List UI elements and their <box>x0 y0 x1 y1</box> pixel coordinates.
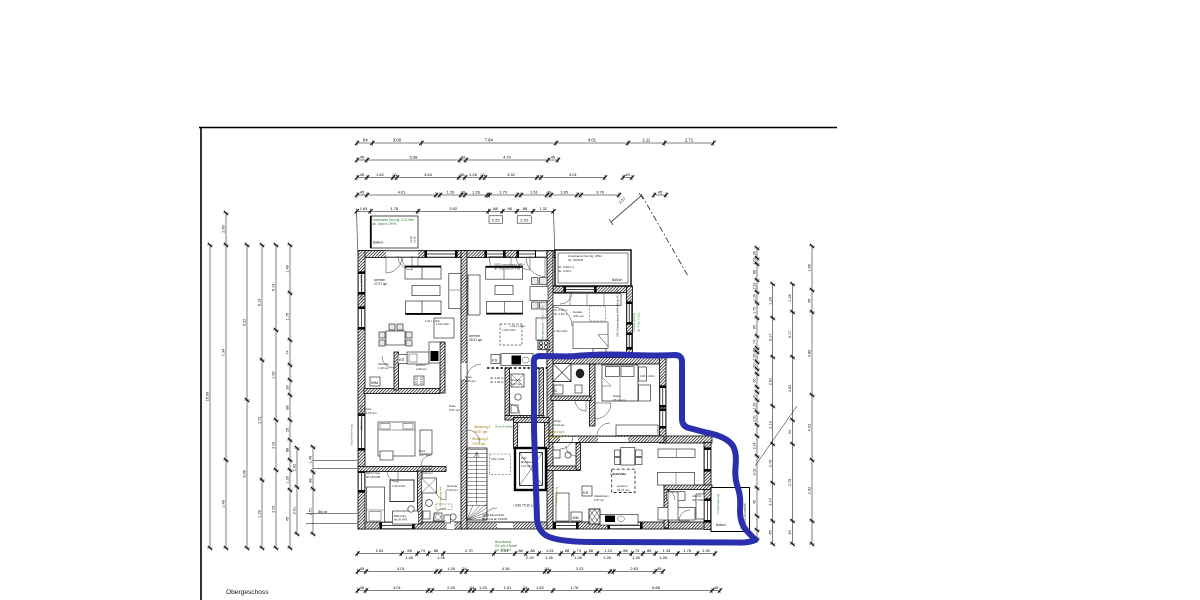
svg-text:30: 30 <box>547 190 552 195</box>
svg-text:88: 88 <box>753 348 757 352</box>
svg-text:1.98: 1.98 <box>808 264 812 271</box>
svg-text:2.51: 2.51 <box>258 416 262 423</box>
svg-text:Balkon: Balkon <box>716 523 726 527</box>
svg-text:5.38: 5.38 <box>410 155 419 160</box>
svg-text:45: 45 <box>658 190 663 195</box>
svg-text:Balkon: Balkon <box>373 241 383 245</box>
svg-text:1.20x1.20m: 1.20x1.20m <box>392 484 406 488</box>
svg-text:1.24: 1.24 <box>604 548 612 553</box>
svg-text:2.22: 2.22 <box>526 555 534 560</box>
svg-text:WM: WM <box>371 380 378 385</box>
svg-text:88: 88 <box>518 548 522 553</box>
svg-text:2-Rettungsweg: 2-Rettungsweg <box>716 493 720 514</box>
svg-text:üb. 2.20 t.L.: üb. 2.20 t.L. <box>554 312 568 316</box>
svg-text:KS: KS <box>583 490 589 495</box>
svg-text:3.14: 3.14 <box>753 443 757 450</box>
svg-text:2.91: 2.91 <box>753 415 757 422</box>
svg-text:1.01: 1.01 <box>753 258 757 265</box>
svg-text:2.70: 2.70 <box>465 548 473 553</box>
svg-text:7.34: 7.34 <box>222 349 226 356</box>
svg-text:üb. 0.90 t.L.: üb. 0.90 t.L. <box>554 308 568 312</box>
svg-text:4.01: 4.01 <box>398 190 407 195</box>
svg-text:5.03 qm: 5.03 qm <box>447 488 458 492</box>
svg-text:88: 88 <box>753 270 757 274</box>
svg-text:0.97 qm: 0.97 qm <box>594 498 605 502</box>
svg-text:28.51 qm: 28.51 qm <box>469 338 483 342</box>
svg-text:6.88: 6.88 <box>652 585 661 590</box>
svg-text:1.28: 1.28 <box>659 555 667 560</box>
svg-text:26: 26 <box>753 251 757 255</box>
svg-text:üb. 2.20 t.L.: üb. 2.20 t.L. <box>490 380 505 384</box>
svg-text:1.26 x 1.26m: 1.26 x 1.26m <box>425 319 440 323</box>
svg-text:BRK4.Nos ab OKFFB: BRK4.Nos ab OKFFB <box>360 275 364 300</box>
svg-text:4.01: 4.01 <box>588 138 597 143</box>
svg-text:BRK4.Nos ab OKFFB: BRK4.Nos ab OKFFB <box>360 405 364 430</box>
svg-text:2.22: 2.22 <box>520 218 529 223</box>
svg-text:88: 88 <box>309 478 313 482</box>
svg-text:üb. 4 töx 1.23m: üb. 4 töx 1.23m <box>637 312 641 332</box>
svg-text:2.11: 2.11 <box>642 138 651 143</box>
svg-text:D: D <box>555 389 558 393</box>
svg-text:Gesz.Proffäche 42: Gesz.Proffäche 42 <box>495 425 520 429</box>
svg-text:86: 86 <box>508 206 513 211</box>
svg-text:5.03 qm: 5.03 qm <box>422 471 433 475</box>
svg-text:1.26: 1.26 <box>545 555 553 560</box>
svg-text:4.70: 4.70 <box>503 155 512 160</box>
svg-text:1.26: 1.26 <box>574 555 582 560</box>
svg-text:WM: WM <box>573 516 579 520</box>
svg-text:1.29: 1.29 <box>258 510 262 517</box>
svg-text:1.26 x 1.26m: 1.26 x 1.26m <box>610 472 625 476</box>
svg-text:3.32: 3.32 <box>507 172 516 177</box>
svg-text:6.13: 6.13 <box>258 299 262 306</box>
svg-text:74: 74 <box>753 340 757 344</box>
svg-text:1.62: 1.62 <box>536 585 545 590</box>
svg-text:45: 45 <box>551 155 556 160</box>
svg-text:88: 88 <box>407 548 411 553</box>
svg-text:3.17: 3.17 <box>788 331 792 338</box>
svg-text:2.01: 2.01 <box>272 441 276 448</box>
svg-text:2.79: 2.79 <box>768 460 772 467</box>
svg-text:KS: KS <box>492 358 498 363</box>
svg-text:74: 74 <box>286 350 290 354</box>
svg-text:üb. 45cm ab OK FFB: üb. 45cm ab OK FFB <box>494 266 520 270</box>
svg-text:2.13: 2.13 <box>768 421 772 428</box>
svg-text:88: 88 <box>523 206 528 211</box>
svg-text:45: 45 <box>360 155 365 160</box>
svg-text:1.75: 1.75 <box>286 313 290 320</box>
svg-text:45: 45 <box>625 172 630 177</box>
svg-text:OR 765/L: OR 765/L <box>692 498 704 502</box>
svg-text:1.70: 1.70 <box>499 190 508 195</box>
svg-text:91: 91 <box>753 394 757 398</box>
svg-text:4.80: 4.80 <box>808 350 812 357</box>
svg-text:L50x 1.20tx: L50x 1.20tx <box>491 457 505 461</box>
svg-text:1.26: 1.26 <box>753 403 757 410</box>
svg-text:3.06: 3.06 <box>243 470 247 477</box>
svg-text:1.62: 1.62 <box>376 172 385 177</box>
svg-text:1.26: 1.26 <box>768 297 772 304</box>
svg-text:KS: KS <box>399 357 405 362</box>
svg-text:1.32: 1.32 <box>539 206 548 211</box>
svg-text:8.27 qm: 8.27 qm <box>419 453 430 457</box>
svg-text:1.20: 1.20 <box>479 585 488 590</box>
svg-text:4.02: 4.02 <box>808 424 812 431</box>
svg-text:1.62: 1.62 <box>272 371 276 378</box>
svg-text:Wohnung 4: Wohnung 4 <box>474 425 490 429</box>
svg-text:1.76: 1.76 <box>684 548 692 553</box>
svg-text:VSG Fensterelement 2Rf4 Wtk ab: VSG Fensterelement 2Rf4 Wtk ab OK FFB <box>617 289 620 337</box>
svg-text:30: 30 <box>460 172 465 177</box>
svg-text:+2.38: +2.38 <box>409 236 413 243</box>
svg-text:1.48: 1.48 <box>222 500 226 507</box>
svg-text:45: 45 <box>768 530 772 534</box>
svg-text:2.22: 2.22 <box>492 218 501 223</box>
svg-text:1.26: 1.26 <box>753 294 757 301</box>
svg-text:4.02: 4.02 <box>788 385 792 392</box>
svg-text:2.60: 2.60 <box>222 225 226 232</box>
svg-text:2.71: 2.71 <box>685 138 694 143</box>
svg-text:1.26: 1.26 <box>603 555 611 560</box>
svg-text:Wohnung 5: Wohnung 5 <box>548 430 564 434</box>
svg-text:45: 45 <box>360 190 365 195</box>
svg-text:1.75: 1.75 <box>753 307 757 314</box>
svg-text:üb. 2.20 li.: üb. 2.20 li. <box>558 269 572 273</box>
svg-text:2.63: 2.63 <box>630 566 639 571</box>
svg-text:3.64: 3.64 <box>424 172 433 177</box>
svg-text:1.26: 1.26 <box>447 566 456 571</box>
svg-text:üb. OKFFB: üb. OKFFB <box>568 258 583 262</box>
svg-text:1.64: 1.64 <box>360 206 369 211</box>
svg-text:88: 88 <box>493 206 498 211</box>
svg-text:1.49: 1.49 <box>309 456 313 463</box>
svg-text:3.01: 3.01 <box>393 585 402 590</box>
svg-text:1.26: 1.26 <box>788 294 792 301</box>
svg-text:45: 45 <box>657 566 662 571</box>
svg-text:5.13: 5.13 <box>272 284 276 291</box>
svg-text:3.92: 3.92 <box>449 206 458 211</box>
svg-text:24: 24 <box>462 566 467 571</box>
svg-text:.64: .64 <box>362 138 368 143</box>
svg-text:3.06 qm: 3.06 qm <box>465 379 476 383</box>
svg-text:Btk.se: Btk.se <box>318 510 328 514</box>
svg-text:45: 45 <box>360 585 365 590</box>
svg-text:4.36: 4.36 <box>502 566 511 571</box>
svg-text:ab. UNw.b OFF8: ab. UNw.b OFF8 <box>373 222 397 226</box>
svg-text:24: 24 <box>470 585 475 590</box>
svg-text:4.01: 4.01 <box>397 566 406 571</box>
svg-text:1.34: 1.34 <box>663 548 671 553</box>
svg-text:2.79: 2.79 <box>788 479 792 486</box>
svg-text:1.26: 1.26 <box>286 476 290 483</box>
svg-text:2.26: 2.26 <box>447 585 456 590</box>
svg-text:15.99: 15.99 <box>206 392 210 402</box>
svg-text:ab OKFFB: ab OKFFB <box>366 475 380 479</box>
svg-text:+2.26: +2.26 <box>413 236 417 243</box>
svg-text:1.26: 1.26 <box>753 354 757 361</box>
svg-text:2.51: 2.51 <box>272 505 276 512</box>
svg-text:2.02: 2.02 <box>753 469 757 476</box>
svg-text:2-Rettungsweg üb. 4 töx 1.23m: 2-Rettungsweg üb. 4 töx 1.23m <box>541 305 545 345</box>
svg-text:27.97 qm: 27.97 qm <box>374 282 388 286</box>
svg-text:3.14: 3.14 <box>768 498 772 505</box>
svg-text:BRK4.Nos: BRK4.Nos <box>394 514 407 518</box>
svg-text:2.51: 2.51 <box>309 508 313 515</box>
svg-text:88: 88 <box>623 548 627 553</box>
svg-text:45: 45 <box>286 517 290 521</box>
svg-text:n. Wohnbereig 4x4: n. Wohnbereig 4x4 <box>439 486 443 510</box>
svg-text:16.54 qm: 16.54 qm <box>364 411 377 415</box>
svg-text:2.02: 2.02 <box>808 487 812 494</box>
svg-text:88: 88 <box>589 548 593 553</box>
svg-text:45: 45 <box>360 566 365 571</box>
svg-text:2.01: 2.01 <box>293 507 297 514</box>
svg-text:ca. 300 qm: ca. 300 qm <box>495 548 511 552</box>
svg-text:56.97 qm: 56.97 qm <box>474 430 488 434</box>
svg-text:3.76: 3.76 <box>596 190 605 195</box>
svg-text:4.28 qm: 4.28 qm <box>416 367 427 371</box>
svg-text:4.01: 4.01 <box>569 172 578 177</box>
svg-text:24: 24 <box>523 585 528 590</box>
svg-text:1.26: 1.26 <box>469 172 478 177</box>
svg-text:66: 66 <box>753 379 757 383</box>
svg-text:88: 88 <box>647 548 651 553</box>
svg-text:1.51: 1.51 <box>504 585 513 590</box>
svg-text:1.51: 1.51 <box>530 190 539 195</box>
svg-text:1.26: 1.26 <box>447 190 456 195</box>
svg-text:88: 88 <box>434 548 438 553</box>
svg-text:Obergeschoss: Obergeschoss <box>226 589 269 596</box>
svg-text:Aufz.: Aufz. <box>521 456 528 460</box>
svg-text:88: 88 <box>286 448 290 452</box>
svg-text:1.95: 1.95 <box>560 190 569 195</box>
svg-text:88: 88 <box>565 548 569 553</box>
svg-text:1.78: 1.78 <box>390 206 399 211</box>
svg-text:1.26: 1.26 <box>702 548 710 553</box>
svg-text:2-Rettungsweg: 2-Rettungsweg <box>632 313 636 332</box>
svg-text:45: 45 <box>360 172 365 177</box>
svg-text:24: 24 <box>545 566 550 571</box>
svg-text:1.26x1.26m: 1.26x1.26m <box>502 328 516 332</box>
svg-text:7.64: 7.64 <box>485 138 494 143</box>
svg-text:2.81: 2.81 <box>768 378 772 385</box>
svg-text:30: 30 <box>461 155 466 160</box>
svg-text:1.76: 1.76 <box>571 585 580 590</box>
svg-text:1.02: 1.02 <box>293 464 297 471</box>
svg-text:2.22: 2.22 <box>753 283 757 290</box>
svg-text:20: 20 <box>753 364 757 368</box>
svg-text:1.26: 1.26 <box>472 190 481 195</box>
svg-text:12R x 1.20m: 12R x 1.20m <box>640 374 655 378</box>
svg-text:9.22: 9.22 <box>243 319 247 326</box>
svg-text:1.20x1.20m: 1.20x1.20m <box>554 329 568 333</box>
svg-text:45: 45 <box>714 585 719 590</box>
svg-text:1.48: 1.48 <box>286 265 290 272</box>
svg-text:45: 45 <box>808 299 812 303</box>
svg-text:45: 45 <box>753 500 757 504</box>
svg-text:1.26: 1.26 <box>405 555 413 560</box>
svg-text:2-flg Fenstereinig: 2-flg Fenstereinig <box>350 424 354 446</box>
svg-text:1.26: 1.26 <box>632 555 640 560</box>
svg-text:1.24: 1.24 <box>546 548 554 553</box>
svg-text:1.10 qm: 1.10 qm <box>378 366 389 370</box>
svg-text:Balkon: Balkon <box>612 278 622 282</box>
svg-text:4.51 qm: 4.51 qm <box>573 314 584 318</box>
svg-text:88: 88 <box>286 405 290 409</box>
svg-text:15.71 qm: 15.71 qm <box>617 488 630 492</box>
svg-text:45: 45 <box>788 530 792 534</box>
svg-text:15.14 qm: 15.14 qm <box>613 398 626 402</box>
svg-text:3.13: 3.13 <box>576 566 585 571</box>
svg-text:30: 30 <box>461 190 466 195</box>
svg-text:1.26: 1.26 <box>437 555 445 560</box>
svg-text:70.08 qm: 70.08 qm <box>472 442 486 446</box>
svg-text:3.23 qm: 3.23 qm <box>554 423 565 427</box>
svg-text:6.37 qm: 6.37 qm <box>511 382 522 386</box>
svg-text:3.17: 3.17 <box>768 334 772 341</box>
svg-text:25: 25 <box>286 428 290 432</box>
svg-text:Wohnung 3: Wohnung 3 <box>472 437 488 441</box>
svg-text:88: 88 <box>530 548 534 553</box>
svg-text:24: 24 <box>788 430 792 434</box>
svg-text:2.54: 2.54 <box>376 548 384 553</box>
svg-text:5.57 qm: 5.57 qm <box>449 408 460 412</box>
svg-text:64.62 qm: 64.62 qm <box>548 435 562 439</box>
svg-text:n. Wohnbereig: n. Wohnbereig <box>555 486 559 505</box>
svg-text:BRK-Lds ab OKFFB: BRK-Lds ab OKFFB <box>482 517 507 521</box>
svg-text:1.26 x 1.26m: 1.26 x 1.26m <box>510 324 525 328</box>
svg-text:ab OK FFB: ab OK FFB <box>394 518 407 522</box>
svg-text:3.00: 3.00 <box>393 138 402 143</box>
svg-text:1.10 m/min: 1.10 m/min <box>521 465 534 468</box>
svg-text:89: 89 <box>753 325 757 329</box>
svg-text:28: 28 <box>286 385 290 389</box>
